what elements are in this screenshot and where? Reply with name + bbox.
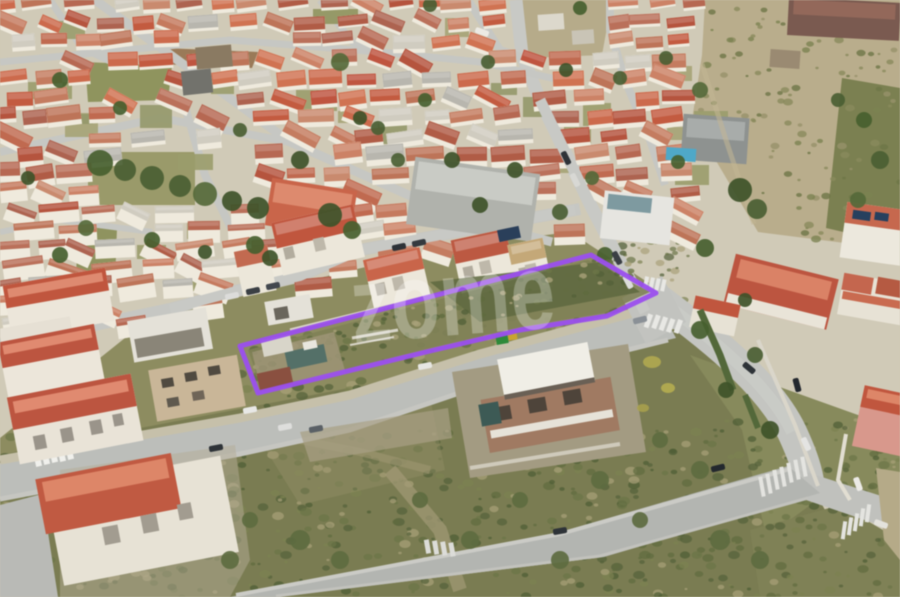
svg-text:zome: zome bbox=[346, 231, 559, 367]
